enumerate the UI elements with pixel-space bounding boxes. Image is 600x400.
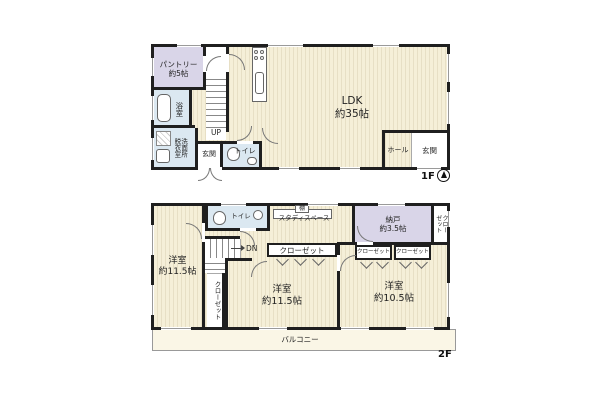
toilet-1f-label: トイレ — [230, 147, 260, 156]
window — [378, 203, 405, 206]
stove-icon — [254, 50, 258, 54]
balcony-label: バルコニー — [250, 335, 350, 344]
window — [268, 44, 303, 47]
wall — [195, 128, 198, 167]
north-needle — [441, 171, 447, 178]
wall — [352, 206, 355, 242]
floor-2-plan: DN 棚 — [151, 203, 450, 330]
stairs-dn-lower — [205, 258, 225, 273]
closet-r2-label: クローゼット — [395, 249, 430, 256]
study-label: スタディスペース — [273, 214, 335, 222]
floor-2-label: 2F — [438, 349, 452, 360]
wall — [205, 206, 208, 228]
genkan-right-label: 玄関 — [412, 146, 447, 155]
door-gap — [202, 223, 205, 242]
room-right-label: 洋室 約10.5帖 — [357, 281, 431, 305]
kitchen-sink — [255, 72, 264, 94]
room-left-label: 洋室 約11.5帖 — [153, 256, 202, 279]
window — [151, 96, 154, 120]
pantry-label: パントリー 約5帖 — [154, 60, 203, 79]
wall — [220, 141, 223, 167]
front-door-right — [417, 167, 441, 170]
compass-icon — [437, 169, 450, 182]
closet-middle-top-label: クローゼット — [269, 246, 335, 255]
floor-1-label: 1F — [421, 171, 435, 182]
storage-label: 納戸 約3.5帖 — [363, 215, 423, 234]
door-gap — [357, 242, 373, 245]
window — [406, 327, 434, 330]
window — [308, 203, 338, 206]
bathtub — [157, 94, 171, 122]
stove-icon — [260, 50, 264, 54]
toilet-fixture-2f — [213, 211, 226, 225]
washbasin — [156, 149, 170, 163]
ldk-label: LDK 約35帖 — [319, 95, 385, 121]
window — [161, 327, 191, 330]
genkan-left-label: 玄関 — [198, 150, 220, 159]
window — [151, 138, 154, 160]
stairs-up — [206, 74, 226, 128]
closet-r1-label: クローゼット — [356, 249, 391, 256]
wall — [205, 228, 270, 231]
door-gap — [237, 141, 253, 144]
closet-right-vertical-label: クロー ゼット — [434, 210, 447, 238]
closet-line — [207, 273, 222, 274]
window — [151, 225, 154, 255]
wall — [228, 258, 252, 261]
wall — [225, 258, 228, 327]
floor-1-plan: UP — [151, 44, 450, 170]
toilet-sink — [247, 157, 257, 165]
window — [373, 44, 399, 47]
stove-icon — [260, 56, 264, 60]
window — [341, 327, 369, 330]
window — [447, 283, 450, 317]
shelf-label: 棚 — [295, 205, 309, 213]
window — [447, 54, 450, 82]
hall-label: ホール — [385, 146, 411, 155]
bath-label: 浴室 — [175, 96, 183, 122]
window — [221, 203, 246, 206]
entrance-door-arc — [198, 168, 210, 181]
wall — [189, 90, 192, 125]
closet-left-vertical-label: クローゼット — [210, 277, 220, 323]
window — [177, 44, 201, 47]
washroom-label: 洗面所 脱衣室 — [173, 132, 187, 164]
window — [259, 327, 287, 330]
room-middle-label: 洋室 約11.5帖 — [245, 284, 319, 308]
wall — [151, 167, 450, 170]
window — [447, 92, 450, 124]
stairs-up-label: UP — [204, 128, 228, 137]
window — [279, 167, 299, 170]
floorplan-canvas: UP — [0, 0, 600, 400]
dn-arrow-line — [231, 248, 241, 249]
stove-icon — [254, 56, 258, 60]
wall — [151, 125, 195, 128]
washer-space — [156, 131, 171, 146]
window — [151, 285, 154, 315]
window — [340, 167, 360, 170]
toilet-2f-label: トイレ — [227, 212, 255, 220]
entrance-door-arc — [210, 168, 222, 181]
wall — [382, 130, 447, 133]
wall — [151, 87, 206, 90]
